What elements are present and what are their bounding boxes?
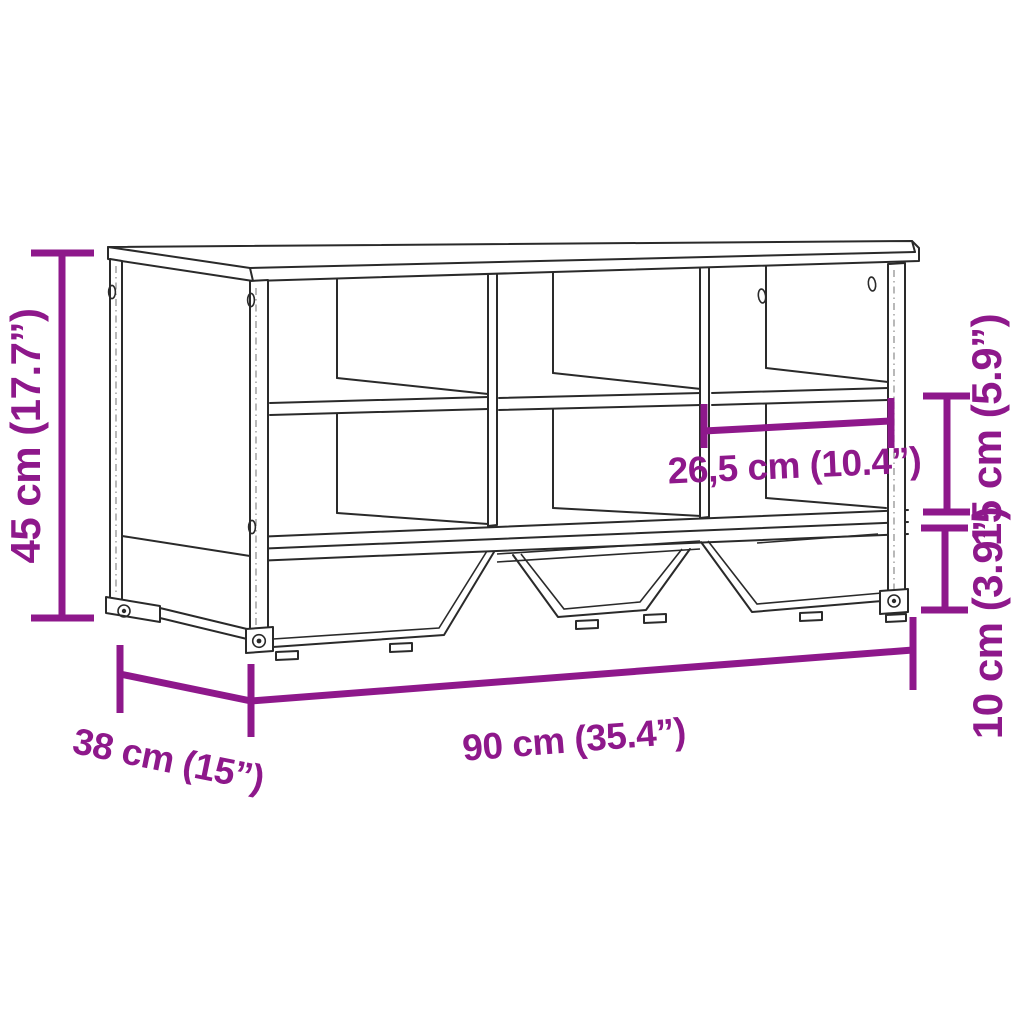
- divider-left: [488, 266, 497, 526]
- front-left-stile: [248, 280, 268, 648]
- lower-clearance-dimension-label: 10 cm (3.9”): [964, 507, 1011, 739]
- back-left-post: [109, 259, 122, 602]
- foot-pad: [644, 614, 666, 623]
- front-sled-left-leg: [273, 552, 494, 647]
- depth-dimension: 38 cm (15”): [69, 645, 267, 799]
- lower-clearance-dimension: 10 cm (3.9”): [921, 507, 1011, 739]
- inner-width-dimension: 26,5 cm (10.4”): [667, 398, 922, 492]
- height-dimension-label: 45 cm (17.7”): [2, 309, 49, 564]
- left-side-bottom-edge: [122, 536, 250, 556]
- left-depth-runner: [160, 608, 247, 639]
- foot-pad: [576, 620, 598, 629]
- height-dimension: 45 cm (17.7”): [2, 253, 94, 618]
- width-dimension-label: 90 cm (35.4”): [461, 710, 687, 768]
- foot-pad: [276, 651, 298, 660]
- foot-pad: [886, 614, 906, 622]
- product-dimension-diagram: 45 cm (17.7”) 38 cm (15”) 90 cm (35.4”) …: [0, 0, 1024, 1024]
- back-left-foot: [106, 597, 160, 622]
- depth-dimension-label: 38 cm (15”): [69, 720, 267, 799]
- foot-pad: [800, 612, 822, 621]
- bottom-board: [253, 498, 908, 561]
- metal-base-frame: [106, 541, 908, 660]
- foot-pad: [390, 643, 412, 652]
- diagram-canvas: 45 cm (17.7”) 38 cm (15”) 90 cm (35.4”) …: [0, 0, 1024, 1024]
- top-board: [108, 241, 919, 281]
- middle-shelves: [270, 368, 888, 415]
- back-panel-hole-icon: [758, 277, 877, 304]
- width-dimension: 90 cm (35.4”): [251, 617, 913, 769]
